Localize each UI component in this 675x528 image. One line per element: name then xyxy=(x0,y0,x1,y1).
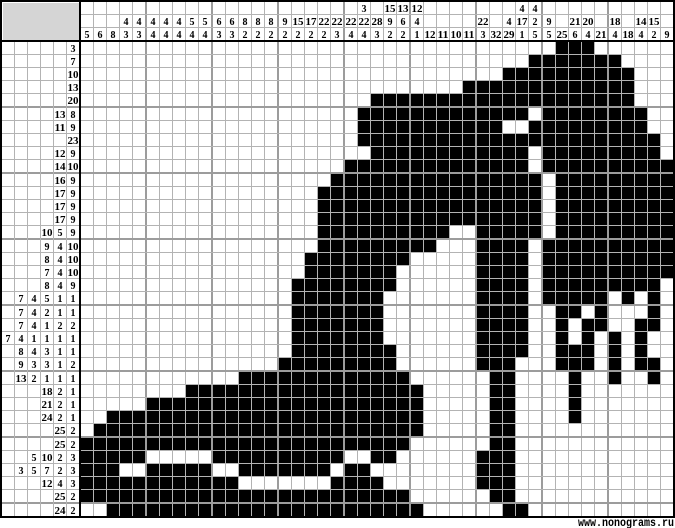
svg-text:21: 21 xyxy=(42,400,53,411)
svg-text:14: 14 xyxy=(636,17,647,28)
svg-text:7: 7 xyxy=(45,466,50,477)
svg-text:7: 7 xyxy=(19,308,24,319)
svg-text:9: 9 xyxy=(45,242,50,253)
svg-text:6: 6 xyxy=(217,17,222,28)
svg-text:3: 3 xyxy=(137,30,142,41)
svg-text:1: 1 xyxy=(71,334,76,345)
svg-text:12: 12 xyxy=(55,149,66,160)
svg-text:25: 25 xyxy=(55,426,66,437)
svg-text:4: 4 xyxy=(639,30,644,41)
svg-text:4: 4 xyxy=(32,321,37,332)
svg-text:2: 2 xyxy=(58,400,63,411)
svg-text:4: 4 xyxy=(151,17,156,28)
svg-text:2: 2 xyxy=(652,30,657,41)
svg-text:21: 21 xyxy=(570,17,581,28)
svg-text:2: 2 xyxy=(58,466,63,477)
svg-text:4: 4 xyxy=(415,17,420,28)
svg-text:8: 8 xyxy=(71,110,76,121)
svg-text:4: 4 xyxy=(613,30,618,41)
svg-text:11: 11 xyxy=(438,30,449,41)
svg-text:10: 10 xyxy=(68,162,79,173)
svg-text:9: 9 xyxy=(71,123,76,134)
svg-text:2: 2 xyxy=(71,321,76,332)
svg-text:5: 5 xyxy=(58,228,63,239)
svg-text:2: 2 xyxy=(533,17,538,28)
svg-text:1: 1 xyxy=(71,387,76,398)
svg-text:5: 5 xyxy=(533,30,538,41)
svg-text:15: 15 xyxy=(293,17,304,28)
svg-text:2: 2 xyxy=(269,30,274,41)
svg-text:10: 10 xyxy=(68,70,79,81)
svg-text:17: 17 xyxy=(306,17,317,28)
svg-text:9: 9 xyxy=(19,360,24,371)
svg-text:5: 5 xyxy=(45,294,50,305)
svg-text:2: 2 xyxy=(32,374,37,385)
svg-text:7: 7 xyxy=(19,294,24,305)
svg-text:1: 1 xyxy=(415,30,420,41)
svg-text:10: 10 xyxy=(42,453,53,464)
svg-text:4: 4 xyxy=(586,30,591,41)
svg-text:13: 13 xyxy=(68,83,79,94)
svg-text:4: 4 xyxy=(19,334,24,345)
svg-text:7: 7 xyxy=(45,268,50,279)
svg-text:9: 9 xyxy=(71,215,76,226)
svg-text:4: 4 xyxy=(190,30,195,41)
svg-text:2: 2 xyxy=(256,30,261,41)
svg-text:4: 4 xyxy=(32,308,37,319)
svg-text:1: 1 xyxy=(58,294,63,305)
svg-text:3: 3 xyxy=(375,30,380,41)
svg-text:22: 22 xyxy=(332,17,343,28)
svg-text:5: 5 xyxy=(203,17,208,28)
svg-text:1: 1 xyxy=(45,374,50,385)
svg-text:10: 10 xyxy=(68,242,79,253)
svg-text:13: 13 xyxy=(398,4,409,15)
svg-text:3: 3 xyxy=(19,466,24,477)
svg-text:www.nonograms.ru: www.nonograms.ru xyxy=(578,516,674,528)
svg-text:10: 10 xyxy=(42,228,53,239)
svg-text:29: 29 xyxy=(504,30,515,41)
svg-text:3: 3 xyxy=(71,44,76,55)
svg-text:2: 2 xyxy=(71,440,76,451)
svg-text:17: 17 xyxy=(517,17,528,28)
svg-text:4: 4 xyxy=(58,255,63,266)
svg-text:15: 15 xyxy=(649,17,660,28)
svg-text:1: 1 xyxy=(71,308,76,319)
svg-text:25: 25 xyxy=(55,492,66,503)
svg-text:4: 4 xyxy=(203,30,208,41)
svg-text:8: 8 xyxy=(45,255,50,266)
svg-text:10: 10 xyxy=(451,30,462,41)
svg-text:32: 32 xyxy=(491,30,502,41)
svg-text:10: 10 xyxy=(68,268,79,279)
svg-text:3: 3 xyxy=(45,347,50,358)
svg-text:4: 4 xyxy=(137,17,142,28)
svg-text:22: 22 xyxy=(346,17,357,28)
svg-text:1: 1 xyxy=(71,347,76,358)
svg-text:4: 4 xyxy=(32,347,37,358)
svg-text:8: 8 xyxy=(256,17,261,28)
svg-text:3: 3 xyxy=(71,453,76,464)
svg-text:15: 15 xyxy=(385,4,396,15)
svg-text:20: 20 xyxy=(68,96,79,107)
svg-text:4: 4 xyxy=(58,281,63,292)
svg-text:2: 2 xyxy=(45,308,50,319)
svg-text:5: 5 xyxy=(32,453,37,464)
svg-text:9: 9 xyxy=(283,17,288,28)
svg-text:13: 13 xyxy=(16,374,27,385)
svg-text:2: 2 xyxy=(58,387,63,398)
svg-text:1: 1 xyxy=(58,334,63,345)
svg-text:8: 8 xyxy=(45,281,50,292)
svg-text:9: 9 xyxy=(71,281,76,292)
svg-text:1: 1 xyxy=(71,374,76,385)
svg-text:1: 1 xyxy=(45,334,50,345)
svg-text:1: 1 xyxy=(71,413,76,424)
svg-text:3: 3 xyxy=(32,360,37,371)
svg-text:2: 2 xyxy=(296,30,301,41)
svg-text:9: 9 xyxy=(71,228,76,239)
svg-text:4: 4 xyxy=(124,17,129,28)
svg-text:4: 4 xyxy=(520,4,525,15)
svg-text:2: 2 xyxy=(71,360,76,371)
svg-text:24: 24 xyxy=(42,413,53,424)
svg-text:8: 8 xyxy=(269,17,274,28)
svg-text:2: 2 xyxy=(322,30,327,41)
svg-text:11: 11 xyxy=(464,30,475,41)
svg-text:5: 5 xyxy=(547,30,552,41)
svg-text:17: 17 xyxy=(55,215,66,226)
svg-text:18: 18 xyxy=(610,17,621,28)
svg-text:3: 3 xyxy=(230,30,235,41)
svg-text:10: 10 xyxy=(68,255,79,266)
svg-text:1: 1 xyxy=(58,374,63,385)
svg-text:4: 4 xyxy=(58,242,63,253)
svg-text:3: 3 xyxy=(71,479,76,490)
svg-text:4: 4 xyxy=(151,30,156,41)
svg-text:4: 4 xyxy=(507,17,512,28)
svg-text:2: 2 xyxy=(58,321,63,332)
svg-text:4: 4 xyxy=(32,294,37,305)
svg-text:3: 3 xyxy=(362,4,367,15)
svg-text:3: 3 xyxy=(217,30,222,41)
svg-text:7: 7 xyxy=(19,321,24,332)
svg-text:7: 7 xyxy=(71,57,76,68)
svg-text:9: 9 xyxy=(71,149,76,160)
svg-text:20: 20 xyxy=(583,17,594,28)
svg-text:8: 8 xyxy=(111,30,116,41)
svg-text:3: 3 xyxy=(71,466,76,477)
svg-text:4: 4 xyxy=(533,4,538,15)
svg-text:1: 1 xyxy=(71,294,76,305)
svg-text:1: 1 xyxy=(520,30,525,41)
svg-text:12: 12 xyxy=(412,4,423,15)
svg-text:2: 2 xyxy=(71,426,76,437)
svg-text:24: 24 xyxy=(55,506,66,517)
svg-text:2: 2 xyxy=(58,413,63,424)
svg-text:3: 3 xyxy=(335,30,340,41)
svg-text:1: 1 xyxy=(71,400,76,411)
svg-text:9: 9 xyxy=(71,176,76,187)
svg-text:2: 2 xyxy=(71,506,76,517)
svg-text:22: 22 xyxy=(319,17,330,28)
svg-text:4: 4 xyxy=(164,30,169,41)
svg-text:6: 6 xyxy=(401,17,406,28)
svg-text:2: 2 xyxy=(58,453,63,464)
svg-text:8: 8 xyxy=(243,17,248,28)
svg-text:9: 9 xyxy=(71,189,76,200)
svg-text:5: 5 xyxy=(190,17,195,28)
svg-text:9: 9 xyxy=(665,30,670,41)
svg-text:5: 5 xyxy=(32,466,37,477)
svg-text:1: 1 xyxy=(58,360,63,371)
svg-text:9: 9 xyxy=(547,17,552,28)
svg-text:1: 1 xyxy=(45,321,50,332)
svg-text:8: 8 xyxy=(19,347,24,358)
svg-text:22: 22 xyxy=(359,17,370,28)
svg-text:25: 25 xyxy=(557,30,568,41)
svg-text:2: 2 xyxy=(71,492,76,503)
svg-text:4: 4 xyxy=(58,479,63,490)
svg-text:18: 18 xyxy=(42,387,53,398)
svg-text:2: 2 xyxy=(243,30,248,41)
svg-text:28: 28 xyxy=(372,17,383,28)
svg-text:3: 3 xyxy=(481,30,486,41)
svg-text:21: 21 xyxy=(596,30,607,41)
svg-text:4: 4 xyxy=(58,268,63,279)
svg-text:4: 4 xyxy=(164,17,169,28)
svg-text:17: 17 xyxy=(55,202,66,213)
svg-text:1: 1 xyxy=(32,334,37,345)
svg-text:18: 18 xyxy=(623,30,634,41)
svg-text:2: 2 xyxy=(388,30,393,41)
svg-text:4: 4 xyxy=(362,30,367,41)
svg-text:25: 25 xyxy=(55,440,66,451)
svg-text:7: 7 xyxy=(6,334,11,345)
svg-text:2: 2 xyxy=(309,30,314,41)
svg-text:6: 6 xyxy=(98,30,103,41)
svg-text:22: 22 xyxy=(478,17,489,28)
svg-text:12: 12 xyxy=(42,479,53,490)
svg-text:11: 11 xyxy=(55,123,66,134)
svg-text:9: 9 xyxy=(388,17,393,28)
svg-text:4: 4 xyxy=(177,30,182,41)
svg-text:3: 3 xyxy=(124,30,129,41)
svg-text:23: 23 xyxy=(68,136,79,147)
svg-text:9: 9 xyxy=(71,202,76,213)
svg-text:4: 4 xyxy=(177,17,182,28)
svg-text:2: 2 xyxy=(283,30,288,41)
svg-text:4: 4 xyxy=(349,30,354,41)
svg-text:1: 1 xyxy=(58,347,63,358)
svg-text:13: 13 xyxy=(55,110,66,121)
svg-text:14: 14 xyxy=(55,162,66,173)
svg-text:17: 17 xyxy=(55,189,66,200)
svg-text:2: 2 xyxy=(401,30,406,41)
svg-text:3: 3 xyxy=(45,360,50,371)
svg-text:1: 1 xyxy=(58,308,63,319)
svg-text:16: 16 xyxy=(55,176,66,187)
svg-text:6: 6 xyxy=(230,17,235,28)
svg-text:12: 12 xyxy=(425,30,436,41)
svg-text:5: 5 xyxy=(85,30,90,41)
svg-text:6: 6 xyxy=(573,30,578,41)
